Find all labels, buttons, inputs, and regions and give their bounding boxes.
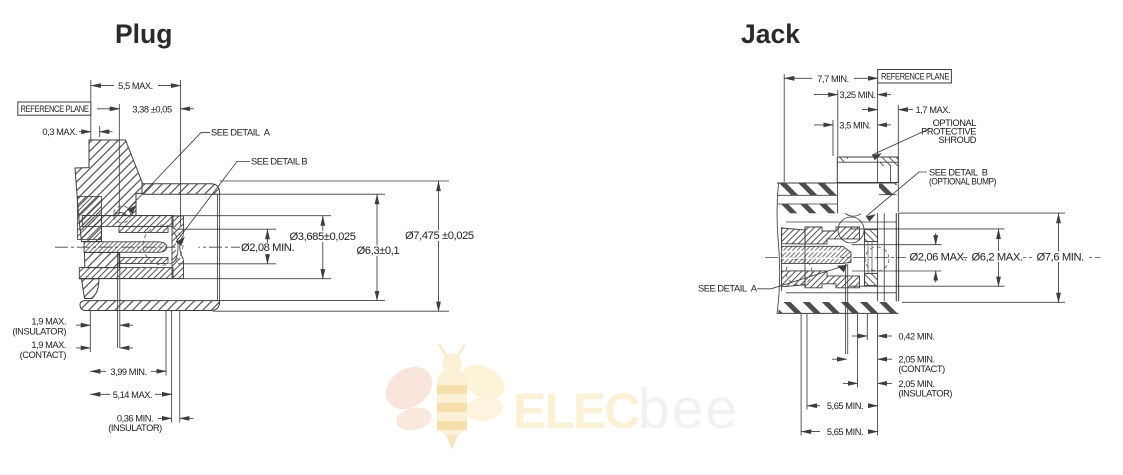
svg-text:Ø2,08 MIN.: Ø2,08 MIN. [241, 242, 294, 254]
svg-text:0,3 MAX.: 0,3 MAX. [42, 127, 77, 137]
svg-text:SEE DETAIL B: SEE DETAIL B [251, 157, 307, 167]
svg-text:REFERENCE PLANE: REFERENCE PLANE [21, 104, 89, 114]
svg-text:1,9 MAX.: 1,9 MAX. [31, 340, 66, 350]
svg-text:(INSULATOR): (INSULATOR) [898, 388, 952, 398]
svg-text:ELEC: ELEC [513, 383, 639, 439]
svg-text:0,42 MIN.: 0,42 MIN. [898, 332, 934, 342]
svg-text:bee: bee [638, 377, 739, 441]
svg-text:Ø3,685±0,025: Ø3,685±0,025 [290, 231, 356, 243]
svg-text:2,05 MIN.: 2,05 MIN. [898, 379, 934, 389]
svg-text:7,7 MIN.: 7,7 MIN. [817, 74, 849, 84]
svg-text:(INSULATOR): (INSULATOR) [12, 327, 66, 337]
svg-text:3,38 ±0,05: 3,38 ±0,05 [132, 104, 172, 114]
svg-text:5,65 MIN.: 5,65 MIN. [827, 401, 863, 411]
svg-text:Jack: Jack [741, 19, 800, 49]
svg-text:3,99 MIN.: 3,99 MIN. [110, 367, 146, 377]
svg-text:Ø6,2 MAX.: Ø6,2 MAX. [972, 251, 1023, 263]
svg-text:Ø2,06 MAX.: Ø2,06 MAX. [910, 251, 967, 263]
svg-text:3,25 MIN.: 3,25 MIN. [839, 90, 875, 100]
svg-text:0,36 MIN.: 0,36 MIN. [117, 413, 153, 423]
svg-text:Ø7,475 ±0,025: Ø7,475 ±0,025 [405, 230, 474, 242]
svg-text:Ø6,3±0,1: Ø6,3±0,1 [357, 245, 400, 257]
svg-text:5,14 MAX.: 5,14 MAX. [113, 390, 152, 400]
svg-text:3,5 MIN.: 3,5 MIN. [839, 120, 871, 130]
svg-text:5,5 MAX.: 5,5 MAX. [118, 81, 153, 91]
svg-text:SHROUD: SHROUD [938, 135, 976, 145]
svg-text:(INSULATOR): (INSULATOR) [108, 423, 162, 433]
svg-text:(CONTACT): (CONTACT) [20, 350, 67, 360]
svg-text:SEE DETAIL A: SEE DETAIL A [698, 283, 758, 293]
svg-text:SEE DETAIL A: SEE DETAIL A [211, 128, 271, 138]
svg-text:(CONTACT): (CONTACT) [898, 364, 945, 374]
svg-text:(OPTIONAL BUMP): (OPTIONAL BUMP) [929, 177, 996, 187]
svg-text:1,7 MAX.: 1,7 MAX. [916, 105, 951, 115]
svg-text:1,9 MAX.: 1,9 MAX. [31, 317, 66, 327]
svg-text:2,05 MIN.: 2,05 MIN. [898, 355, 934, 365]
svg-text:5,65 MIN.: 5,65 MIN. [827, 427, 863, 437]
svg-text:Ø7,6 MIN.: Ø7,6 MIN. [1037, 251, 1085, 263]
svg-text:Plug: Plug [115, 19, 172, 49]
svg-text:REFERENCE PLANE: REFERENCE PLANE [881, 72, 949, 82]
